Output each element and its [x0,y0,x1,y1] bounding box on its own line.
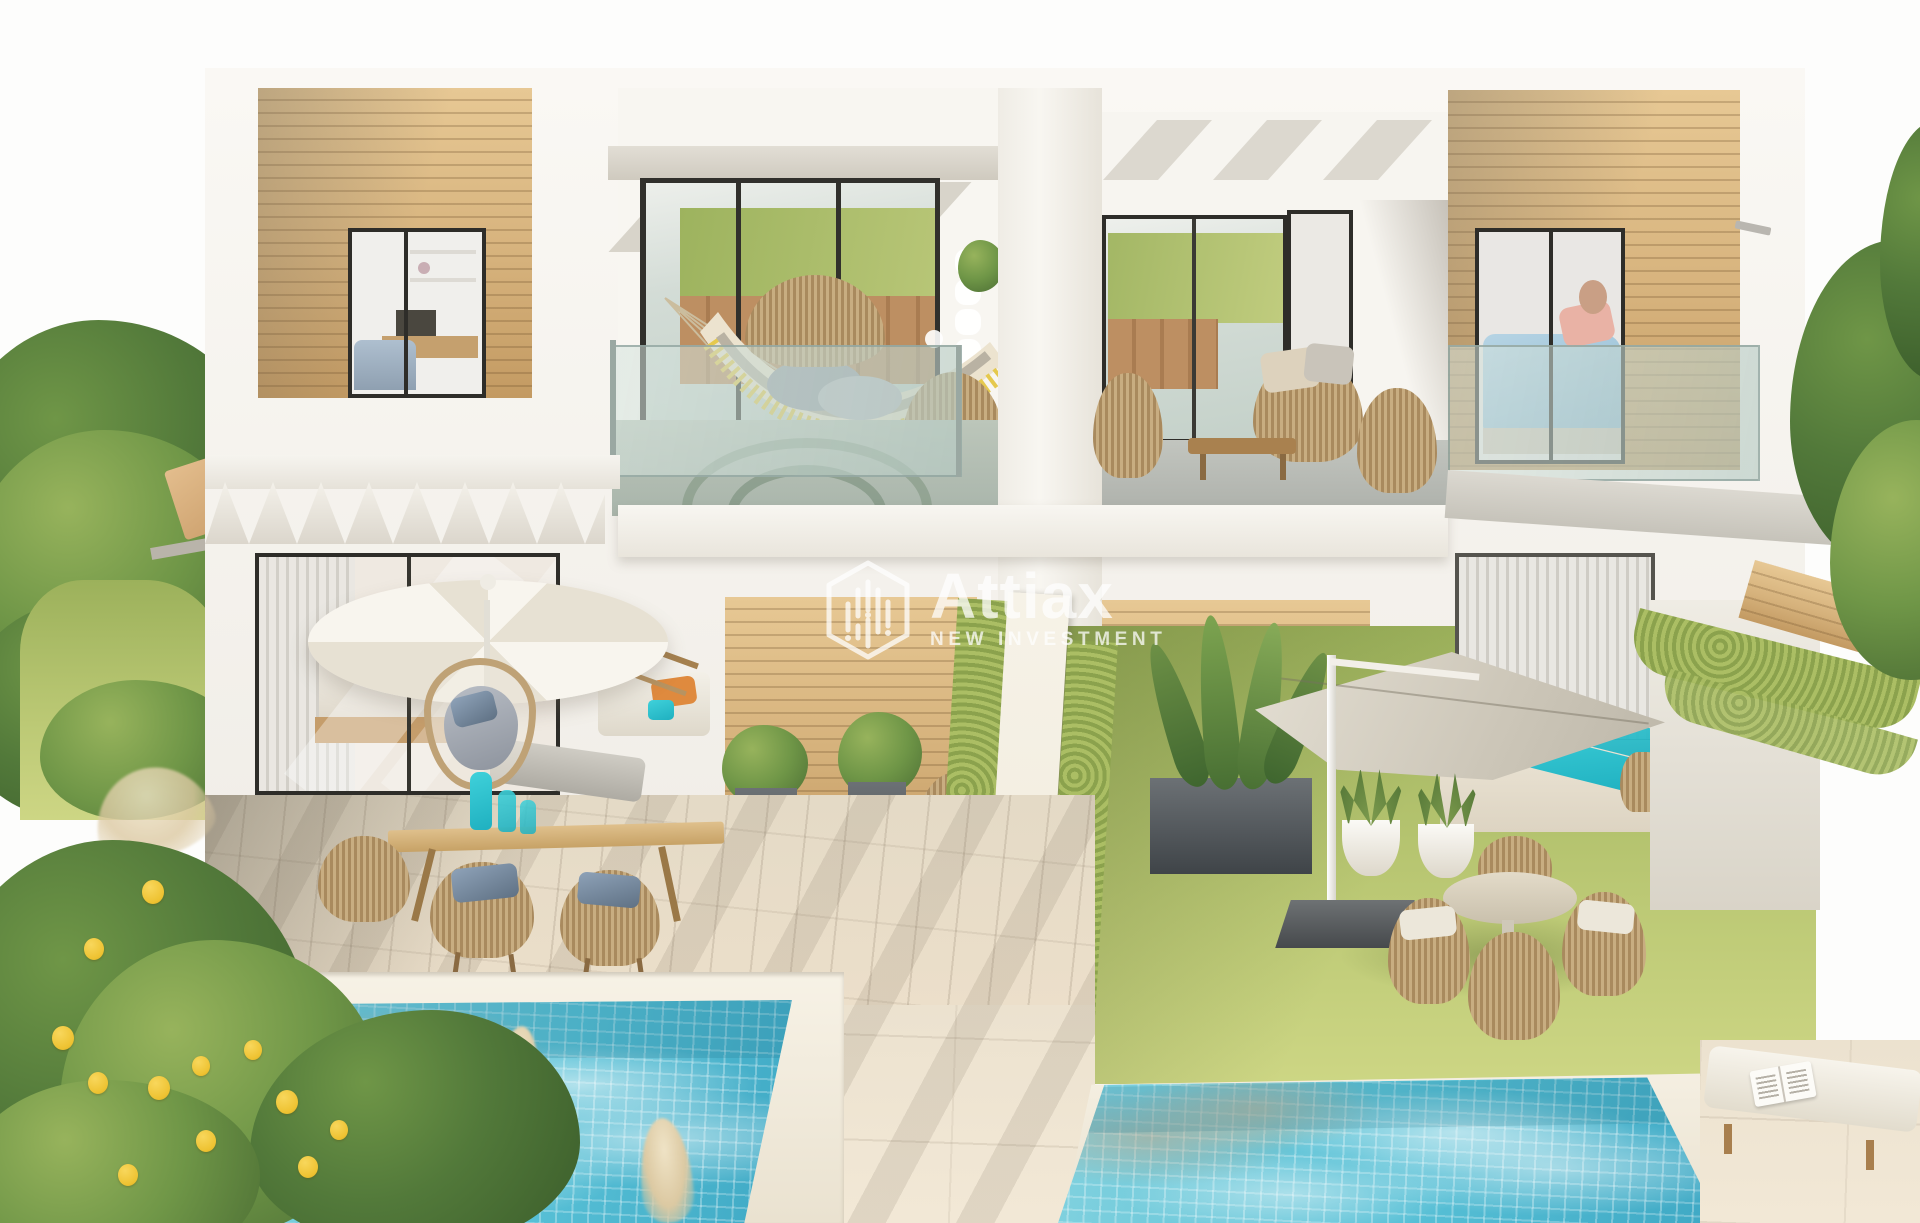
door-frame-top [640,178,940,183]
lemon-fruit [298,1156,318,1178]
magazine-text-lines [1755,1074,1779,1099]
parasol-finial [480,574,496,590]
lounger-leg [1866,1140,1874,1170]
upper-left-window [348,228,486,398]
chair-cushion-blue [577,871,642,908]
lemon-fruit [244,1040,262,1060]
lemon-fruit [52,1026,74,1050]
lemon-fruit [142,880,164,904]
lemon-fruit [88,1072,108,1094]
lemon-fruit [84,938,104,960]
lemon-fruit [196,1130,216,1152]
lemon-fruit [148,1076,170,1100]
lemon-fruit [276,1090,298,1114]
lemon-fruit [330,1120,348,1140]
chair-cushion [1399,905,1458,941]
window-mullion [404,232,408,394]
coffee-table-leg [1200,454,1206,480]
shelf [410,278,476,282]
turquoise-vase [520,800,536,834]
shelf [410,250,476,254]
lemon-fruit [118,1164,138,1186]
desk-tv [396,310,436,336]
person-head [1579,280,1607,314]
umbrella-mast [1327,655,1336,940]
lounger-leg [1724,1124,1732,1154]
large-gray-planter [1150,778,1312,874]
turquoise-vase [498,790,516,832]
dining-chair [318,836,410,922]
turquoise-vase [470,772,492,830]
pool2-water [1058,1076,1720,1223]
chair-cushion-blue [450,863,519,904]
pergola-beam [608,146,1000,180]
attiax-logo-icon [822,560,914,660]
chair-cushion [1577,899,1636,935]
teal-pillow [648,700,674,720]
watermark-tagline: NEW INVESTMENT [930,629,1166,651]
coffee-table-leg [1280,454,1286,480]
glass-mullion [1192,219,1196,439]
magazine-text-lines [1786,1069,1810,1094]
magazine-fold [1778,1066,1786,1102]
mid-slab [205,455,620,489]
property-render-image: Attiax NEW INVESTMENT [0,0,1920,1223]
watermark-brand: Attiax [930,569,1166,623]
mid-slab-center [618,505,1448,557]
balustrade-post [956,345,961,477]
lemon-fruit [192,1056,210,1076]
glass-balustrade-center [612,345,962,477]
coffee-table [1188,438,1296,454]
round-table [1443,872,1577,924]
glass-balustrade-right [1448,345,1760,481]
watermark: Attiax NEW INVESTMENT [822,560,1166,660]
pool2-tile-band [1088,1077,1685,1133]
cushion [1303,343,1355,386]
decor [418,262,430,274]
